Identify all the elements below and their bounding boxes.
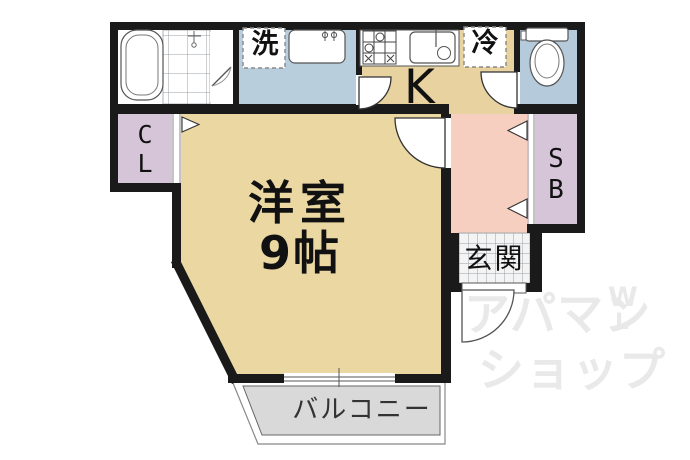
floor-plan: 洗 冷 K C L S B 洋室 9帖 玄関 バルコニー アパマン ショップ W…	[0, 0, 690, 460]
main-room-label: 洋室	[170, 180, 430, 226]
closet-label-l: L	[118, 149, 172, 178]
closet-label: C L	[118, 120, 172, 178]
bathroom-door	[210, 32, 232, 102]
closet-label-c: C	[118, 120, 172, 149]
shoebox-label: S B	[535, 144, 577, 206]
bathroom-tile-floor	[163, 30, 210, 104]
balcony-label: バルコニー	[280, 397, 444, 423]
fridge-label: 冷	[466, 30, 504, 57]
entrance-label: 玄関	[459, 245, 530, 273]
kitchen-label: K	[404, 64, 435, 111]
washer-label: 洗	[246, 31, 284, 58]
shoebox-door	[527, 114, 535, 224]
entrance-door-arc	[462, 283, 526, 342]
washbasin-icon	[289, 30, 345, 63]
shoebox-label-s: S	[535, 144, 577, 175]
kitchen-sink-icon	[410, 30, 455, 63]
bathtub-icon	[121, 30, 163, 100]
stove-icon	[363, 31, 396, 64]
shoebox-label-b: B	[535, 175, 577, 206]
closet-door	[172, 114, 181, 183]
room-size-label: 9帖	[170, 230, 430, 276]
